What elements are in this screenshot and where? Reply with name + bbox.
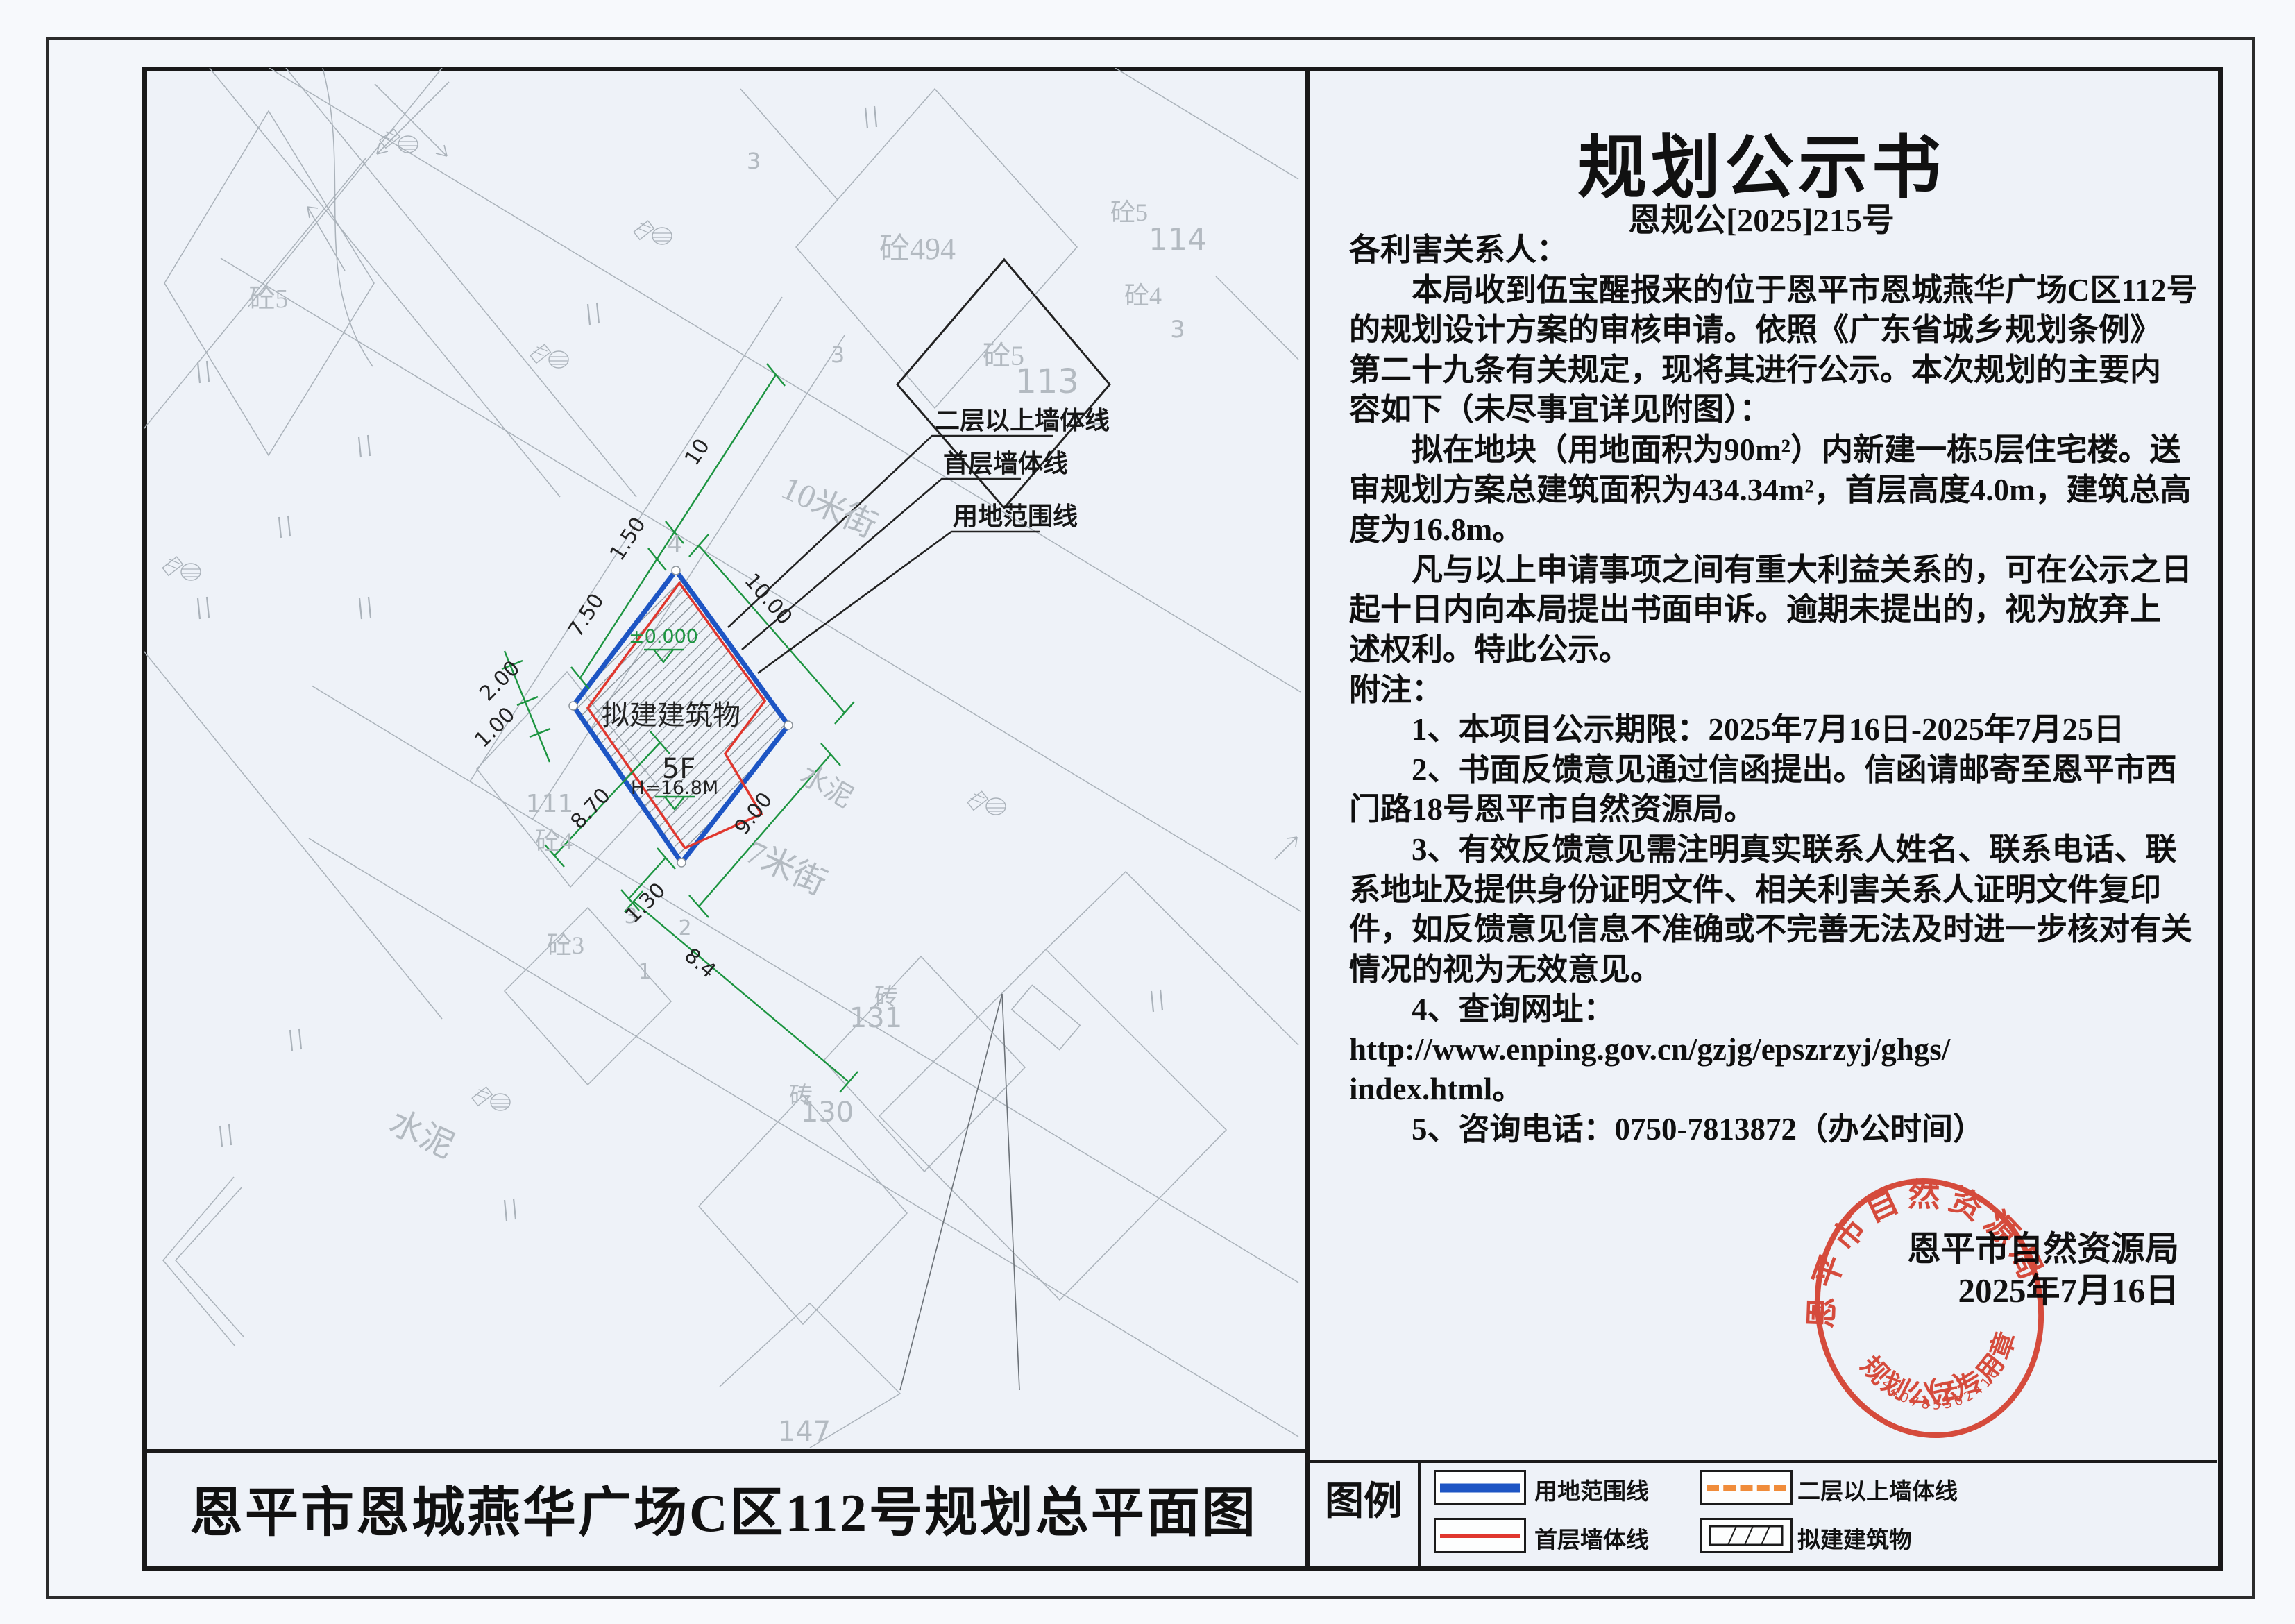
- parcel-number: 3: [1170, 316, 1185, 344]
- dim-street-width: 10: [680, 434, 715, 470]
- legend-item-label: 二层以上墙体线: [1797, 1473, 1958, 1506]
- plan-sheet-title: 恩平市恩城燕华广场C区112号规划总平面图: [142, 1453, 1305, 1564]
- parcel-number: 1: [638, 960, 651, 984]
- legend-sample-site-boundary: [1434, 1470, 1526, 1505]
- parcel-label: 砼4: [535, 827, 573, 855]
- parcel-number: 114: [1149, 222, 1207, 257]
- site-boundary-line-sample: [1440, 1483, 1520, 1492]
- legend-heading: 图例: [1310, 1470, 1418, 1526]
- body-line: 拟在地块（用地面积为90m²）内新建一栋5层住宅楼。送: [1349, 430, 2214, 471]
- survey-arrows: [307, 82, 1297, 859]
- notice-body: 各利害关系人： 本局收到伍宝醒报来的位于恩平市恩城燕华广场C区112号 的规划设…: [1349, 230, 2214, 1150]
- body-line: 3、有效反馈意见需注明真实联系人姓名、联系电话、联: [1349, 830, 2214, 870]
- parcel-number: 130: [801, 1097, 854, 1128]
- body-line: 情况的视为无效意见。: [1349, 950, 2214, 990]
- parcel-number: 3: [831, 341, 845, 368]
- dim-setback: 1.50: [605, 513, 651, 565]
- body-line: 的规划设计方案的审核申请。依照《广东省城乡规划条例》: [1349, 310, 2214, 350]
- legend-sample-first-floor-wall: [1434, 1518, 1526, 1553]
- thin-triangle-lines: [900, 994, 1019, 1390]
- body-line: 件，如反馈意见信息不准确或不完善无法及时进一步核对有关: [1349, 910, 2214, 950]
- label-site-boundary-line: 用地范围线: [953, 502, 1078, 530]
- legend-item-label: 拟建建筑物: [1797, 1521, 1912, 1555]
- legend-sample-upper-wall: [1700, 1470, 1793, 1505]
- parcel-label: 砼5: [248, 285, 288, 314]
- body-line: 5、咨询电话：0750-7813872（办公时间）: [1349, 1110, 2214, 1150]
- legend-label-divider: [1418, 1460, 1421, 1566]
- parcel-label: 砼494: [879, 232, 956, 266]
- parcel-label: 砼5: [1110, 198, 1148, 226]
- parcel-number: 3: [747, 148, 761, 174]
- dim-ne-side: 10.00: [740, 568, 797, 629]
- body-line: 起十日内向本局提出书面申诉。逾期未提出的，视为放弃上: [1349, 590, 2214, 630]
- official-stamp: 恩平市自然资源局 规划公示专用章 （2） 4407853024167: [1790, 1149, 2068, 1468]
- body-line: 度为16.8m。: [1349, 510, 2214, 550]
- dim-nw-side: 8.4: [679, 943, 720, 983]
- legend-box-top-line: [1305, 1460, 2217, 1463]
- body-line: 凡与以上申请事项之间有重大利益关系的，可在公示之日: [1349, 550, 2214, 591]
- body-line: 述权利。特此公示。: [1349, 630, 2214, 670]
- dim-small: 1.00: [470, 702, 520, 752]
- body-line: http://www.enping.gov.cn/gzjg/epszrzyj/g…: [1349, 1030, 2214, 1070]
- label-first-floor-wall-line: 首层墙体线: [943, 450, 1068, 477]
- parcel-number: 147: [778, 1416, 831, 1448]
- surface-label-cement: 水泥: [384, 1103, 459, 1165]
- parcel-number: 111: [526, 790, 574, 818]
- label-upper-floor-wall-line: 二层以上墙体线: [935, 407, 1110, 434]
- height-label: H=16.8M: [631, 777, 718, 799]
- body-line: 附注：: [1349, 670, 2214, 711]
- body-line: index.html。: [1349, 1069, 2214, 1110]
- body-line: 审规划方案总建筑面积为434.34m²，首层高度4.0m，建筑总高: [1349, 471, 2214, 511]
- legend-item-label: 用地范围线: [1534, 1473, 1649, 1506]
- hatch-sample-icon: [1704, 1522, 1788, 1549]
- dim-se-side: 9.00: [730, 788, 778, 839]
- proposed-building-label: 拟建建筑物: [602, 700, 740, 731]
- body-line: 本局收到伍宝醒报来的位于恩平市恩城燕华广场C区112号: [1349, 271, 2214, 311]
- parcel-number: 131: [849, 1002, 902, 1034]
- dim-length: 7.50: [564, 589, 609, 641]
- body-line: 容如下（未尽事宜详见附图）：: [1349, 390, 2214, 430]
- body-line: 第二十九条有关规定，现将其进行公示。本次规划的主要内: [1349, 350, 2214, 391]
- body-line: 4、查询网址：: [1349, 990, 2214, 1030]
- site-plan-drawing: 砼5 砼494 3 3 10米街 7米街 砼5 113 4 砼4 114 砼5 …: [144, 68, 1303, 1448]
- body-line: 门路18号恩平市自然资源局。: [1349, 790, 2214, 830]
- street-name-7m: 7米街: [740, 834, 831, 902]
- parcel-number: 4: [667, 531, 682, 559]
- body-line: 2、书面反馈意见通过信函提出。信函请邮寄至恩平市西: [1349, 750, 2214, 790]
- scanned-planning-notice-sheet: { "doc": { "title": "规划公示书", "doc_no": "…: [0, 0, 2295, 1624]
- body-line: 各利害关系人：: [1349, 230, 2214, 271]
- upper-wall-dashed-sample: [1707, 1485, 1786, 1491]
- parcel-number: 113: [1015, 362, 1079, 401]
- parcel-label: 砼3: [547, 931, 584, 959]
- elevation-label: ±0.000: [629, 626, 698, 648]
- body-line: 系地址及提供身份证明文件、相关利害关系人证明文件复印: [1349, 870, 2214, 911]
- parcel-number: 2: [678, 916, 691, 940]
- body-line: 1、本项目公示期限：2025年7月16日-2025年7月25日: [1349, 710, 2214, 750]
- legend-item-label: 首层墙体线: [1534, 1521, 1649, 1555]
- first-floor-wall-sample: [1440, 1534, 1520, 1538]
- legend-sample-proposed-building: [1700, 1518, 1793, 1553]
- surface-label-cement: 水泥: [795, 759, 858, 813]
- parcel-label: 砼4: [1124, 282, 1162, 310]
- panel-divider: [1305, 67, 1310, 1566]
